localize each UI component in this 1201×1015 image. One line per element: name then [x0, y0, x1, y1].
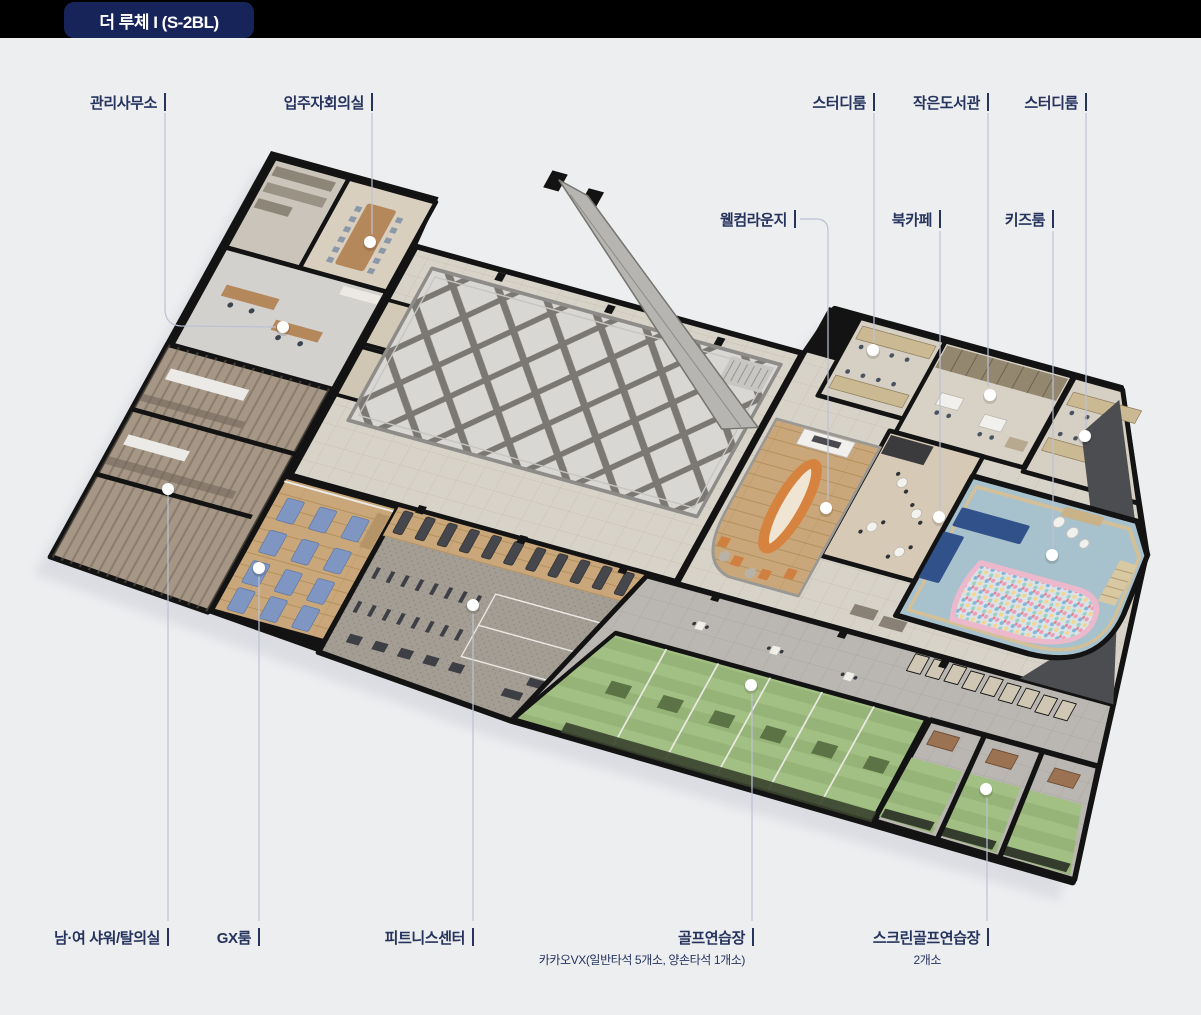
- label-admin-office: 관리사무소: [90, 92, 166, 112]
- leader-tick: [752, 928, 754, 946]
- leader-tick: [472, 928, 474, 946]
- label-screen-golf-sub: 2개소: [913, 951, 941, 968]
- label-screen-golf: 스크린골프연습장: [873, 927, 989, 947]
- label-shower-locker: 남·여 샤워/탈의실: [54, 927, 169, 947]
- leader-tick: [164, 93, 166, 111]
- leader-tick: [873, 93, 875, 111]
- plan-title: 더 루체 I (S-2BL): [99, 8, 218, 33]
- leader-tick: [1085, 93, 1087, 111]
- leader-tick: [371, 93, 373, 111]
- leader-tick: [987, 93, 989, 111]
- label-kids-room: 키즈룸: [1005, 209, 1054, 229]
- leader-tick: [1052, 210, 1054, 228]
- leader-tick: [939, 210, 941, 228]
- label-golf-range: 골프연습장: [678, 927, 754, 947]
- label-fitness-center: 피트니스센터: [385, 927, 474, 947]
- leader-tick: [258, 928, 260, 946]
- label-welcome-lounge: 웰컴라운지: [720, 209, 796, 229]
- label-golf-range-sub: 카카오VX(일반타석 5개소, 양손타석 1개소): [539, 951, 745, 968]
- label-book-cafe: 북카페: [892, 209, 941, 229]
- label-study-room-1: 스터디룸: [812, 92, 875, 112]
- floor-plan: [0, 0, 1201, 1015]
- label-gx-room: GX룸: [217, 927, 260, 947]
- leader-tick: [987, 928, 989, 946]
- leader-tick: [167, 928, 169, 946]
- leader-tick: [794, 210, 796, 228]
- label-small-library: 작은도서관: [913, 92, 989, 112]
- label-study-room-2: 스터디룸: [1024, 92, 1087, 112]
- label-meeting-room: 입주자회의실: [284, 92, 373, 112]
- plan-title-badge: 더 루체 I (S-2BL): [64, 2, 254, 38]
